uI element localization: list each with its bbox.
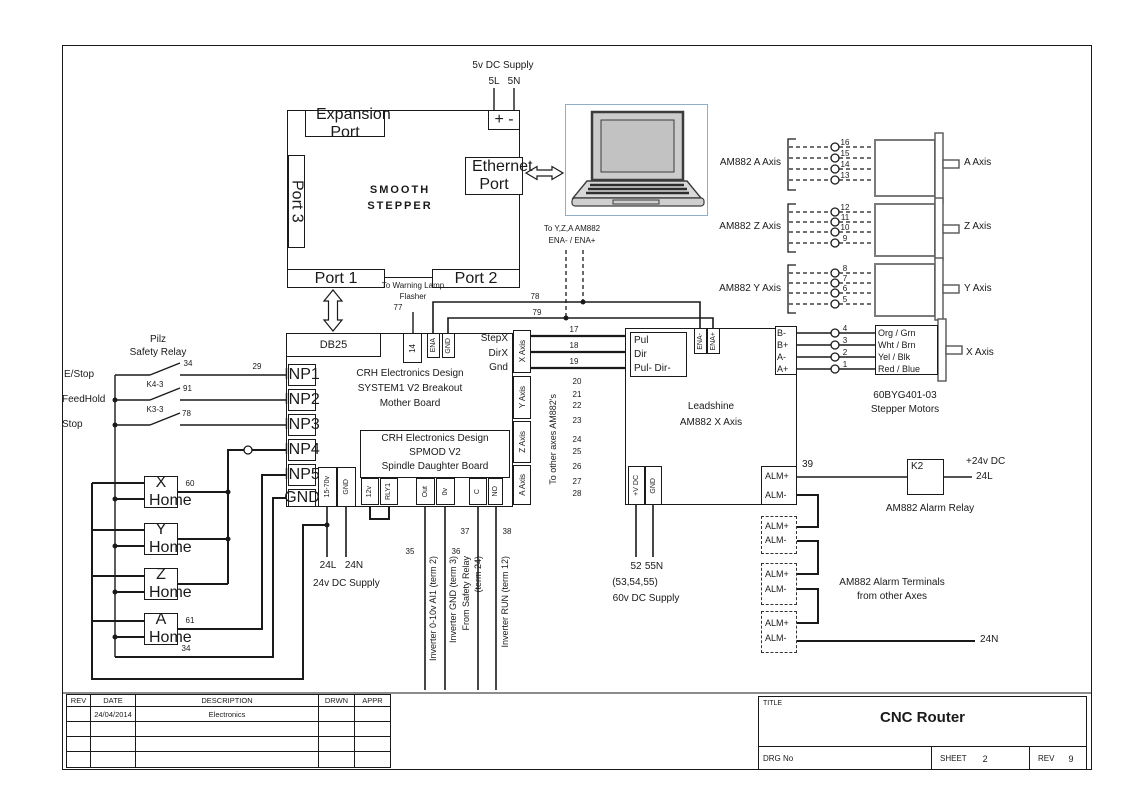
wire-19-label: 19 bbox=[565, 357, 583, 366]
axis-port-a: A Axis bbox=[513, 465, 531, 505]
terminal-vdc: +V DC bbox=[628, 466, 645, 505]
table-cell bbox=[67, 722, 91, 737]
home-switch-a: A Home bbox=[144, 613, 178, 645]
wiring-layer bbox=[0, 0, 1123, 794]
supply-60v-alt-label: (53,54,55) bbox=[605, 577, 665, 588]
terminal-pul-dir-minus-label: Pul- Dir- bbox=[634, 363, 684, 374]
safety-relay-ref-label: From Safety Relay bbox=[460, 556, 471, 690]
spmod-title-3: Spindle Daughter Board bbox=[362, 461, 508, 472]
rev-header: REV bbox=[67, 695, 91, 707]
input-inp4: INP4 bbox=[288, 439, 316, 461]
alarm-relay-caption: AM882 Alarm Relay bbox=[868, 503, 992, 514]
other-axes-note: To other axes AM882's bbox=[546, 378, 559, 500]
wire-27-label: 27 bbox=[568, 477, 586, 486]
title-block: TITLE CNC Router DRG No SHEET2 REV9 bbox=[758, 696, 1087, 770]
motor-z-label: Z Axis bbox=[964, 221, 1008, 232]
input-inp1: INP1 bbox=[288, 364, 316, 386]
table-cell bbox=[136, 752, 319, 768]
table-cell bbox=[319, 707, 355, 722]
drwn-header: DRWN bbox=[319, 695, 355, 707]
alarm-box-1-plus: ALM+ bbox=[765, 521, 795, 531]
inverter-run-label: Inverter RUN (term 12) bbox=[499, 556, 511, 696]
wire-20-label: 20 bbox=[568, 377, 586, 386]
smooth-stepper-title-1: SMOOTH bbox=[340, 184, 460, 196]
input-gnd: GND bbox=[288, 489, 316, 507]
signal-stepx-label: StepX bbox=[466, 333, 508, 344]
terminal-number: 4 bbox=[837, 324, 853, 333]
wire-34b-label: 34 bbox=[178, 644, 194, 653]
terminal-number: 7 bbox=[837, 274, 853, 283]
terminal-ena-minus: ENA- bbox=[694, 328, 707, 354]
wire-24-label: 24 bbox=[568, 435, 586, 444]
terminal-ena-plus: ENA+ bbox=[707, 328, 720, 354]
appr-header: APPR bbox=[355, 695, 391, 707]
inp4-contact-circle bbox=[244, 446, 252, 454]
alarm-box-1-minus: ALM- bbox=[765, 535, 795, 545]
table-cell bbox=[67, 752, 91, 768]
wire-color-label: Yel / Blk bbox=[878, 352, 936, 362]
table-cell bbox=[319, 752, 355, 768]
terminal-a-minus-label: A- bbox=[777, 352, 795, 362]
terminal-number: 3 bbox=[837, 336, 853, 345]
wire-18-label: 18 bbox=[565, 341, 583, 350]
supply-24v-neutral-label: 24N bbox=[340, 560, 368, 571]
feedhold-label: FeedHold bbox=[62, 394, 112, 405]
terminal-number: 5 bbox=[837, 295, 853, 304]
wire-79-label: 79 bbox=[528, 308, 546, 317]
safety-contact-blades bbox=[150, 363, 180, 425]
table-cell bbox=[355, 752, 391, 768]
warning-lamp-note-2: Flasher bbox=[374, 292, 452, 301]
wire-34-label: 34 bbox=[180, 359, 196, 368]
input-inp2: INP2 bbox=[288, 389, 316, 411]
table-cell bbox=[355, 737, 391, 752]
terminal-15-70v: 15-70v bbox=[318, 467, 337, 507]
motor-model-label-2: Stepper Motors bbox=[856, 404, 954, 415]
terminal-number: 12 bbox=[837, 203, 853, 212]
terminal-number: 15 bbox=[837, 149, 853, 158]
terminal-driver-gnd: GND bbox=[645, 466, 662, 505]
terminal-number: 8 bbox=[837, 264, 853, 273]
estop-label: E/Stop bbox=[64, 369, 110, 380]
inverter-gnd-label: Inverter GND (term 3) bbox=[447, 556, 459, 690]
signal-dirx-label: DirX bbox=[466, 348, 508, 359]
wire-60-label: 60 bbox=[182, 479, 198, 488]
alarm-terminals-caption-1: AM882 Alarm Terminals bbox=[828, 577, 956, 588]
spmod-title-2: SPMOD V2 bbox=[362, 447, 508, 458]
motor-a-label: A Axis bbox=[964, 157, 1008, 168]
contact-k3-3-label: K3-3 bbox=[141, 405, 169, 414]
alarm-box-2-plus: ALM+ bbox=[765, 569, 795, 579]
table-cell bbox=[355, 707, 391, 722]
terminal-14: 14 bbox=[403, 333, 422, 363]
revision-table: REV DATE DESCRIPTION DRWN APPR 24/04/201… bbox=[66, 694, 391, 768]
supply-24v-live-label: 24L bbox=[314, 560, 342, 571]
axis-port-z: Z Axis bbox=[513, 421, 531, 463]
wire-91-label: 91 bbox=[183, 384, 199, 393]
schematic-sheet: 5v DC Supply 5L 5N + - Expansion Port Po… bbox=[0, 0, 1123, 794]
db25-connector: DB25 bbox=[286, 333, 381, 357]
terminal-number: 1 bbox=[837, 360, 853, 369]
home-switch-x: X Home bbox=[144, 476, 178, 508]
terminal-no: NO bbox=[488, 478, 503, 505]
date-header: DATE bbox=[91, 695, 136, 707]
contact-k4-3-label: K4-3 bbox=[141, 380, 169, 389]
title-block-bottom-row: DRG No SHEET2 REV9 bbox=[759, 746, 1086, 770]
table-cell bbox=[67, 737, 91, 752]
driver-z-label: AM882 Z Axis bbox=[701, 221, 781, 232]
drawing-title: CNC Router bbox=[759, 709, 1086, 727]
terminal-out: Out bbox=[416, 478, 435, 505]
terminal-number: 2 bbox=[837, 348, 853, 357]
home-switch-z: Z Home bbox=[144, 568, 178, 600]
terminal-12v: 12v bbox=[361, 478, 379, 505]
table-cell bbox=[136, 737, 319, 752]
wire-24n-label: 24N bbox=[980, 634, 1010, 645]
title-label: TITLE bbox=[763, 700, 782, 708]
table-cell bbox=[91, 737, 136, 752]
terminal-power-gnd: GND bbox=[337, 467, 356, 507]
wire-38-label: 38 bbox=[499, 527, 515, 536]
wire-color-label: Wht / Brn bbox=[878, 340, 936, 350]
wire-color-label: Red / Blue bbox=[878, 364, 936, 374]
supply-60v-label: 60v DC Supply bbox=[604, 593, 688, 604]
rev-cell: REV9 bbox=[1029, 747, 1086, 770]
table-cell bbox=[355, 722, 391, 737]
terminal-b-minus-label: B- bbox=[777, 328, 795, 338]
alarm-box-2-minus: ALM- bbox=[765, 584, 795, 594]
terminal-number: 11 bbox=[837, 213, 853, 222]
wire-35-label: 35 bbox=[402, 547, 418, 556]
smooth-stepper-title-2: STEPPER bbox=[340, 200, 460, 212]
wire-78-label: 78 bbox=[526, 292, 544, 301]
terminal-alm-plus-label: ALM+ bbox=[765, 471, 795, 481]
enable-bus-note-1: To Y,Z,A AM882 bbox=[528, 224, 616, 233]
terminal-alm-minus-label: ALM- bbox=[765, 490, 795, 500]
revision-date: 24/04/2014 bbox=[91, 707, 136, 722]
terminal-dir-label: Dir bbox=[634, 349, 684, 360]
wire-25-label: 25 bbox=[568, 447, 586, 456]
terminal-number: 16 bbox=[837, 138, 853, 147]
port3: Port 3 bbox=[288, 155, 305, 248]
revision-description: Electronics bbox=[136, 707, 319, 722]
driver-brackets bbox=[788, 139, 796, 313]
power-terminal-block: + - bbox=[488, 110, 520, 130]
wire-77-label: 77 bbox=[390, 303, 406, 312]
terminal-a-plus-label: A+ bbox=[777, 364, 795, 374]
wire-17-label: 17 bbox=[565, 325, 583, 334]
axis-port-x: X Axis bbox=[513, 330, 531, 373]
table-cell bbox=[67, 707, 91, 722]
wire-28-label: 28 bbox=[568, 489, 586, 498]
pilz-label-1: Pilz bbox=[130, 334, 186, 345]
wire-26-label: 26 bbox=[568, 462, 586, 471]
table-cell bbox=[91, 752, 136, 768]
wire-78b-label: 78 bbox=[182, 409, 198, 418]
terminal-number: 6 bbox=[837, 284, 853, 293]
terminal-b-plus-label: B+ bbox=[777, 340, 795, 350]
alarm-terminals-caption-2: from other Axes bbox=[828, 591, 956, 602]
alarm-box-3-minus: ALM- bbox=[765, 633, 795, 643]
wire-39-label: 39 bbox=[802, 459, 822, 470]
table-cell bbox=[136, 722, 319, 737]
axis-port-y: Y Axis bbox=[513, 376, 531, 419]
terminal-number: 13 bbox=[837, 171, 853, 180]
terminal-number: 10 bbox=[837, 223, 853, 232]
wire-22-label: 22 bbox=[568, 401, 586, 410]
leadshine-title-2: AM882 X Axis bbox=[655, 417, 767, 428]
supply-5v-label: 5v DC Supply bbox=[453, 60, 553, 71]
pilz-label-2: Safety Relay bbox=[124, 347, 192, 358]
mother-board-title-1: CRH Electronics Design bbox=[330, 368, 490, 379]
terminal-number: 14 bbox=[837, 160, 853, 169]
ethernet-port: Ethernet Port bbox=[465, 157, 523, 195]
mother-board-title-3: Mother Board bbox=[330, 398, 490, 409]
supply-60v-neutral-label: 55N bbox=[641, 561, 667, 572]
wire-color-label: Org / Grn bbox=[878, 328, 936, 338]
laptop-frame bbox=[565, 104, 708, 216]
home-switch-y: Y Home bbox=[144, 523, 178, 555]
k2-relay-label: K2 bbox=[911, 461, 931, 472]
wire-61-label: 61 bbox=[182, 616, 198, 625]
mother-board-title-2: SYSTEM1 V2 Breakout bbox=[330, 383, 490, 394]
stop-label: Stop bbox=[62, 419, 96, 430]
motor-model-label-1: 60BYG401-03 bbox=[856, 390, 954, 401]
terminal-ena: ENA bbox=[427, 333, 440, 358]
motor-x-label: X Axis bbox=[966, 347, 1010, 358]
terminal-rly1: RLY1 bbox=[380, 478, 398, 505]
supply-5v-neutral-label: 5N bbox=[502, 76, 526, 87]
alarm-box-3-plus: ALM+ bbox=[765, 618, 795, 628]
description-header: DESCRIPTION bbox=[136, 695, 319, 707]
sheet-cell: SHEET2 bbox=[931, 747, 1029, 770]
leadshine-title-1: Leadshine bbox=[655, 401, 767, 412]
alarm-supply-label-1: +24v DC bbox=[966, 456, 1022, 467]
input-inp3: INP3 bbox=[288, 414, 316, 436]
table-cell bbox=[319, 722, 355, 737]
db25-link-arrow bbox=[324, 290, 342, 331]
inverter-ai1-label: Inverter 0-10v AI1 (term 2) bbox=[427, 556, 439, 690]
table-cell bbox=[319, 737, 355, 752]
enable-bus-note-2: ENA- / ENA+ bbox=[528, 236, 616, 245]
terminal-c: C bbox=[469, 478, 487, 505]
input-inp5: INP5 bbox=[288, 464, 316, 486]
supply-24v-label: 24v DC Supply bbox=[313, 578, 397, 589]
safety-relay-term-label: (term 24) bbox=[472, 556, 483, 690]
terminal-gnd: GND bbox=[442, 333, 455, 358]
alarm-supply-label-2: 24L bbox=[976, 471, 1010, 482]
terminal-number: 9 bbox=[837, 234, 853, 243]
expansion-port: Expansion Port bbox=[305, 110, 385, 137]
wire-29-label: 29 bbox=[249, 362, 265, 371]
terminal-pul-label: Pul bbox=[634, 335, 684, 346]
drg-no-cell: DRG No bbox=[759, 747, 931, 770]
driver-y-label: AM882 Y Axis bbox=[701, 283, 781, 294]
table-cell bbox=[91, 722, 136, 737]
warning-lamp-note-1: To Warning Lamp bbox=[374, 281, 452, 290]
motor-y-label: Y Axis bbox=[964, 283, 1008, 294]
wire-23-label: 23 bbox=[568, 416, 586, 425]
terminal-0v: 0v bbox=[436, 478, 455, 505]
spmod-title-1: CRH Electronics Design bbox=[362, 433, 508, 444]
driver-a-label: AM882 A Axis bbox=[701, 157, 781, 168]
wire-21-label: 21 bbox=[568, 390, 586, 399]
port1: Port 1 bbox=[287, 269, 385, 288]
wire-37-label: 37 bbox=[457, 527, 473, 536]
